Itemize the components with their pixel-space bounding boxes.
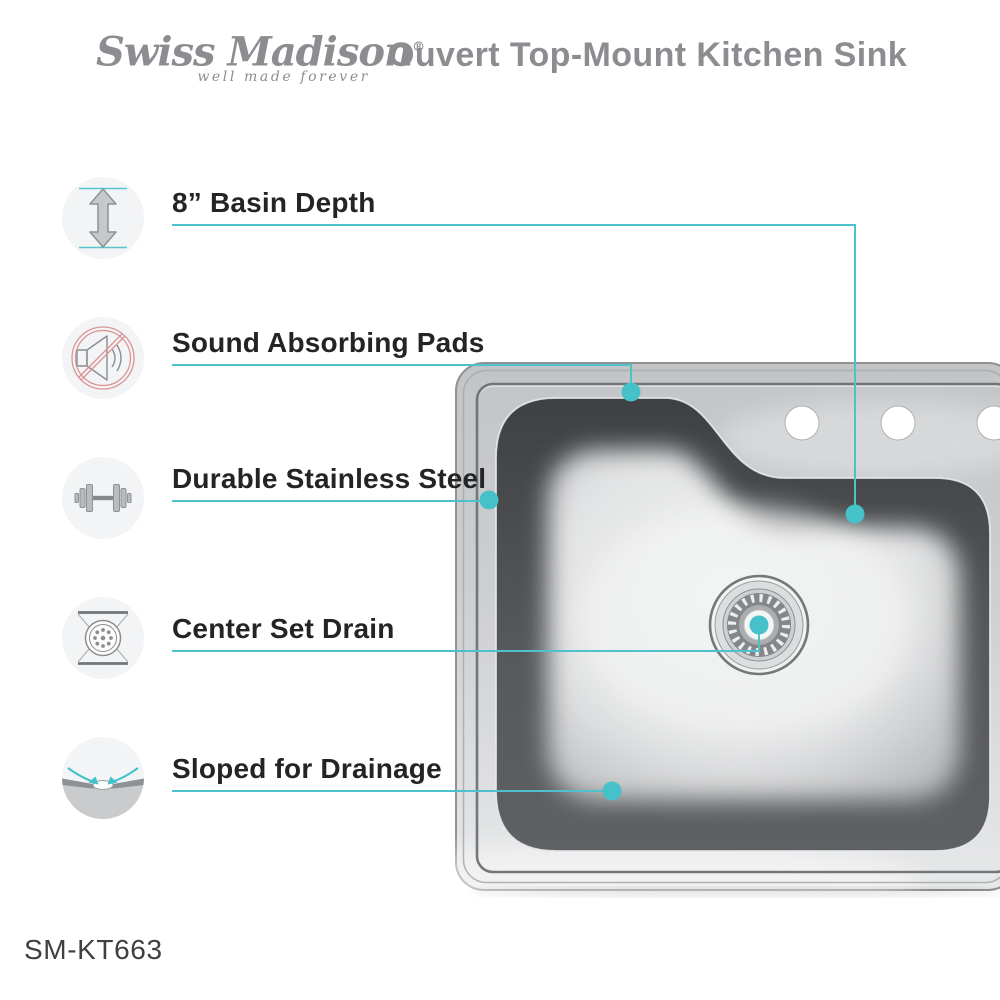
model-number: SM-KT663 — [24, 934, 163, 966]
brand-text: Swiss Madison — [96, 28, 412, 75]
dumbbell-icon — [62, 457, 144, 539]
brand-logo: Swiss Madison® well made forever — [96, 26, 388, 85]
brand-name: Swiss Madison® — [96, 26, 388, 74]
feature-label-sound-pads: Sound Absorbing Pads — [172, 327, 485, 359]
sink-product-image — [440, 350, 1000, 910]
basin-depth-arrow-icon — [62, 177, 144, 259]
faucet-hole — [785, 406, 819, 440]
product-infographic: Swiss Madison® well made forever Ouvert … — [0, 0, 1000, 1000]
feature-label-sloped: Sloped for Drainage — [172, 753, 442, 785]
faucet-hole — [881, 406, 915, 440]
feature-label-center-drain: Center Set Drain — [172, 613, 395, 645]
sloped-basin-icon — [62, 737, 144, 819]
feature-label-stainless: Durable Stainless Steel — [172, 463, 486, 495]
drain-strainer — [710, 576, 808, 674]
feature-label-basin-depth: 8” Basin Depth — [172, 187, 376, 219]
drain-strainer-icon — [62, 597, 144, 679]
muted-speaker-icon — [62, 317, 144, 399]
page-title: Ouvert Top-Mount Kitchen Sink — [388, 36, 907, 75]
